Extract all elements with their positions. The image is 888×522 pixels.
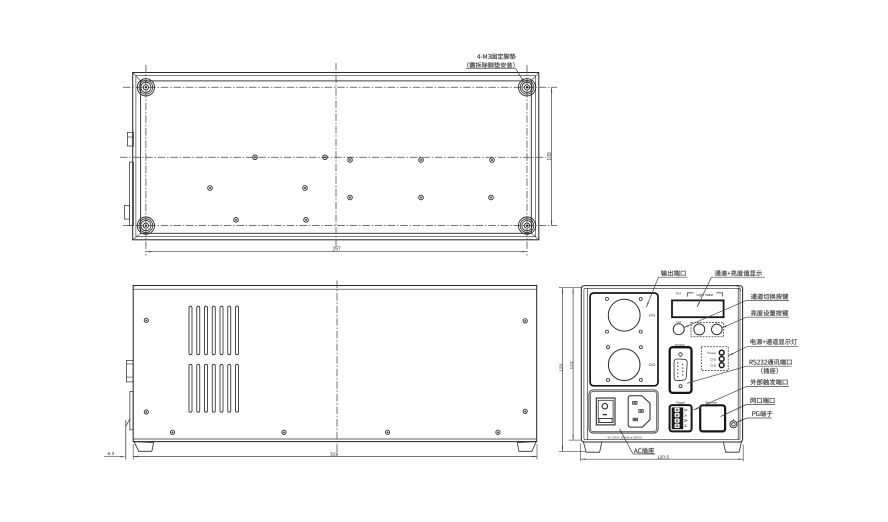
svg-text:129: 129 [558,364,564,372]
svg-text:109: 109 [547,152,553,161]
svg-text:CH: CH [676,291,681,295]
svg-text:6.3: 6.3 [107,451,114,457]
svg-text:315: 315 [330,451,338,457]
svg-text:CH1: CH1 [649,314,656,318]
svg-text:CH1: CH1 [710,357,716,361]
svg-text:123: 123 [569,361,575,369]
svg-text:CH2: CH2 [710,364,716,368]
svg-text:Trigger: Trigger [676,400,686,404]
svg-text:CH2: CH2 [649,363,656,367]
svg-text:CH: CH [676,320,680,324]
svg-text:Power: Power [708,351,717,355]
svg-text:Light Value: Light Value [697,293,714,297]
svg-text:297: 297 [332,247,341,253]
svg-text:120.5: 120.5 [657,454,669,460]
